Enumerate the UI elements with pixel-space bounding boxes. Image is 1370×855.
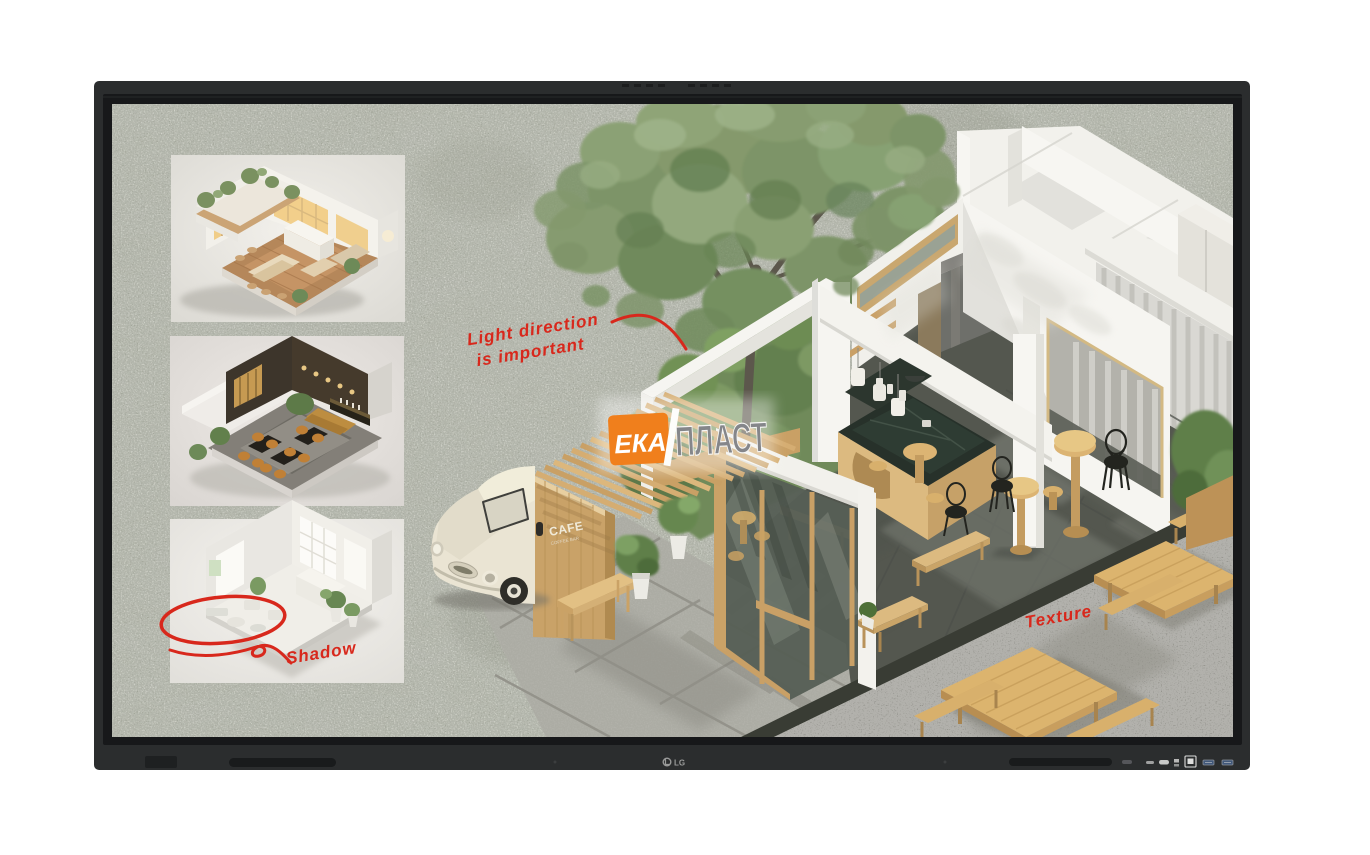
svg-text:LG: LG bbox=[674, 759, 685, 768]
svg-text:ПЛАСТ: ПЛАСТ bbox=[674, 413, 769, 465]
svg-text:ЕКА: ЕКА bbox=[614, 427, 668, 460]
